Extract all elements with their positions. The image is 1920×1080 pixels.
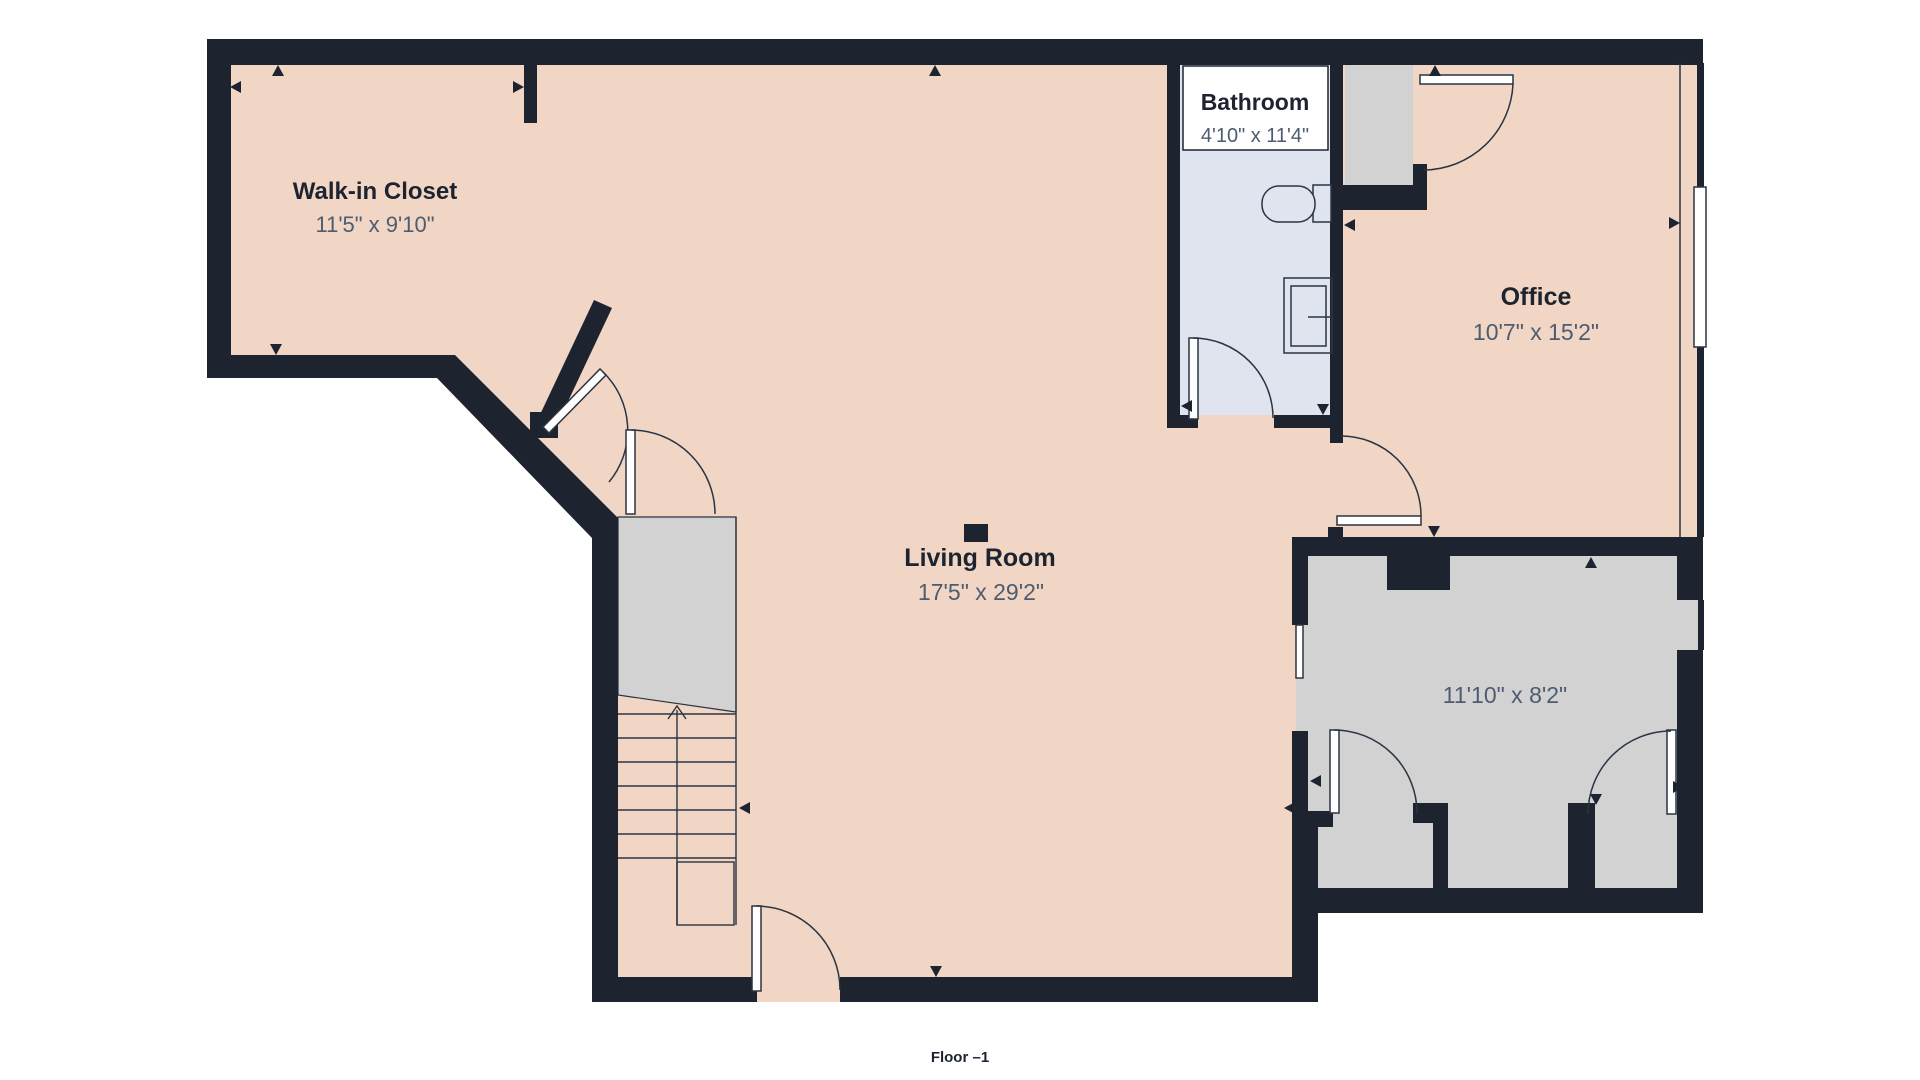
wall-closet-tr-right-stub (1413, 164, 1427, 189)
window-right-wall (1694, 187, 1706, 347)
toilet-bowl (1262, 186, 1315, 222)
wall-right-mid (1697, 347, 1704, 537)
living-room-marker-icon (964, 524, 988, 542)
window-utility-left (1296, 625, 1303, 678)
living-room-dimensions: 17'5" x 29'2" (918, 579, 1044, 605)
wall-utility-bl-cap (1292, 811, 1333, 827)
wall-alcove-divider2 (1568, 803, 1595, 888)
landing-door-leaf (626, 430, 635, 514)
floor-plan: Walk-in Closet 11'5" x 9'10" Bathroom 4'… (0, 0, 1920, 1080)
wall-utility-bottom (1292, 888, 1703, 913)
utility-room-right-gap (1677, 600, 1698, 650)
walk-in-closet-dimensions: 11'5" x 9'10" (315, 212, 434, 237)
utility-room-dimensions: 11'10" x 8'2" (1443, 682, 1567, 708)
wall-right-top (1697, 63, 1704, 187)
wall-utility-top (1292, 537, 1703, 556)
bathroom-dimensions: 4'10" x 11'4" (1201, 125, 1309, 147)
living-room-label: Living Room (904, 544, 1055, 572)
wall-right-gap-edge (1698, 600, 1704, 650)
bathroom-label: Bathroom (1201, 89, 1310, 115)
wall-bathroom-bottom-right (1274, 415, 1343, 428)
wall-bottom-left (592, 977, 757, 1002)
living-to-hall-door-leaf (1337, 516, 1421, 525)
wall-bathroom-right (1330, 63, 1343, 443)
wall-top (207, 39, 1703, 65)
wall-alcove-divider1 (1433, 803, 1448, 888)
wall-bathroom-left (1167, 63, 1180, 428)
wall-utility-top-cap (1328, 527, 1343, 539)
utility-room-floor (1308, 556, 1677, 888)
wall-bottom-right (840, 977, 1318, 1002)
walk-in-closet-label: Walk-in Closet (293, 178, 457, 205)
wall-left (207, 39, 231, 378)
bottom-door-leaf (752, 906, 761, 991)
alcove-right-door-leaf (1667, 730, 1676, 814)
closet-top-right-floor (1345, 63, 1413, 185)
wall-utility-left-top (1292, 537, 1308, 625)
office-door-leaf (1420, 75, 1513, 84)
office-label: Office (1501, 283, 1572, 311)
stair-landing (618, 517, 736, 712)
wall-right-bottom (1677, 650, 1703, 890)
wall-closet-top-stub (524, 63, 537, 123)
office-dimensions: 10'7" x 15'2" (1473, 319, 1599, 345)
alcove-left-door-leaf (1330, 730, 1339, 813)
wall-utility-notch (1387, 556, 1450, 590)
floor-label: Floor –1 (931, 1049, 989, 1066)
